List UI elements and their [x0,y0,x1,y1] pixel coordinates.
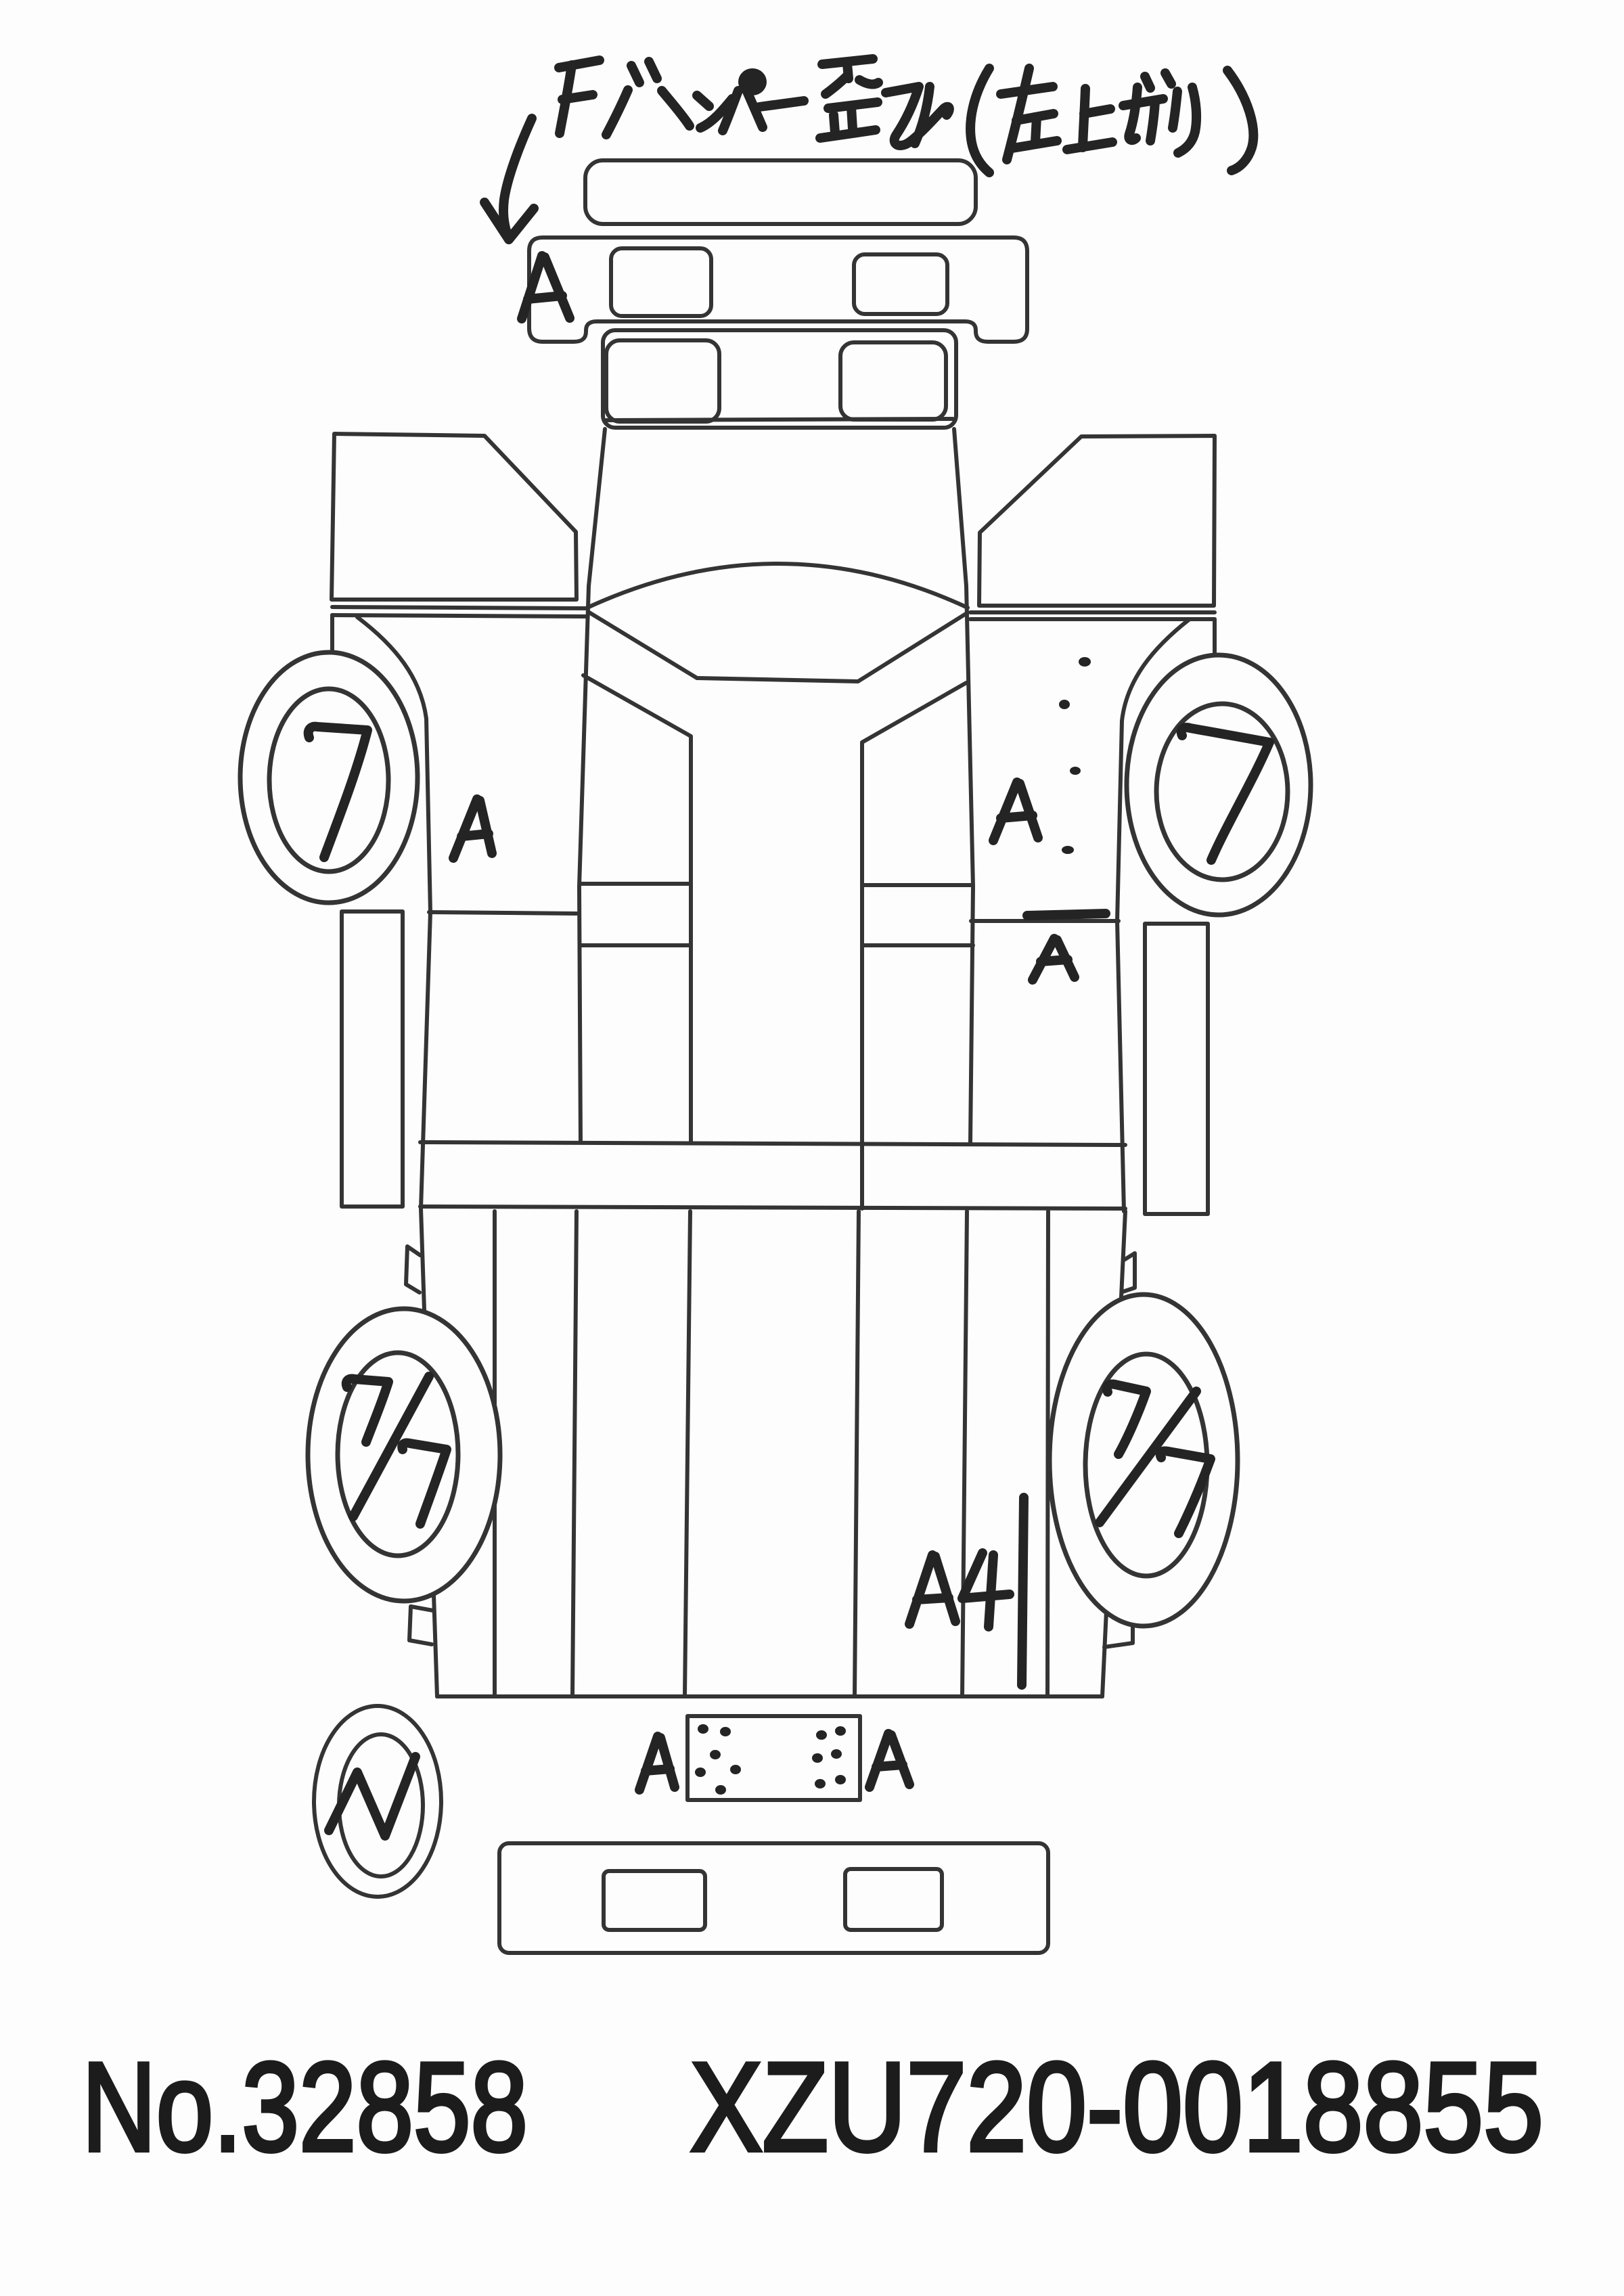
svg-text:XZU720-0018855: XZU720-0018855 [690,2036,1543,2178]
svg-text:No.32858: No.32858 [82,2036,528,2178]
